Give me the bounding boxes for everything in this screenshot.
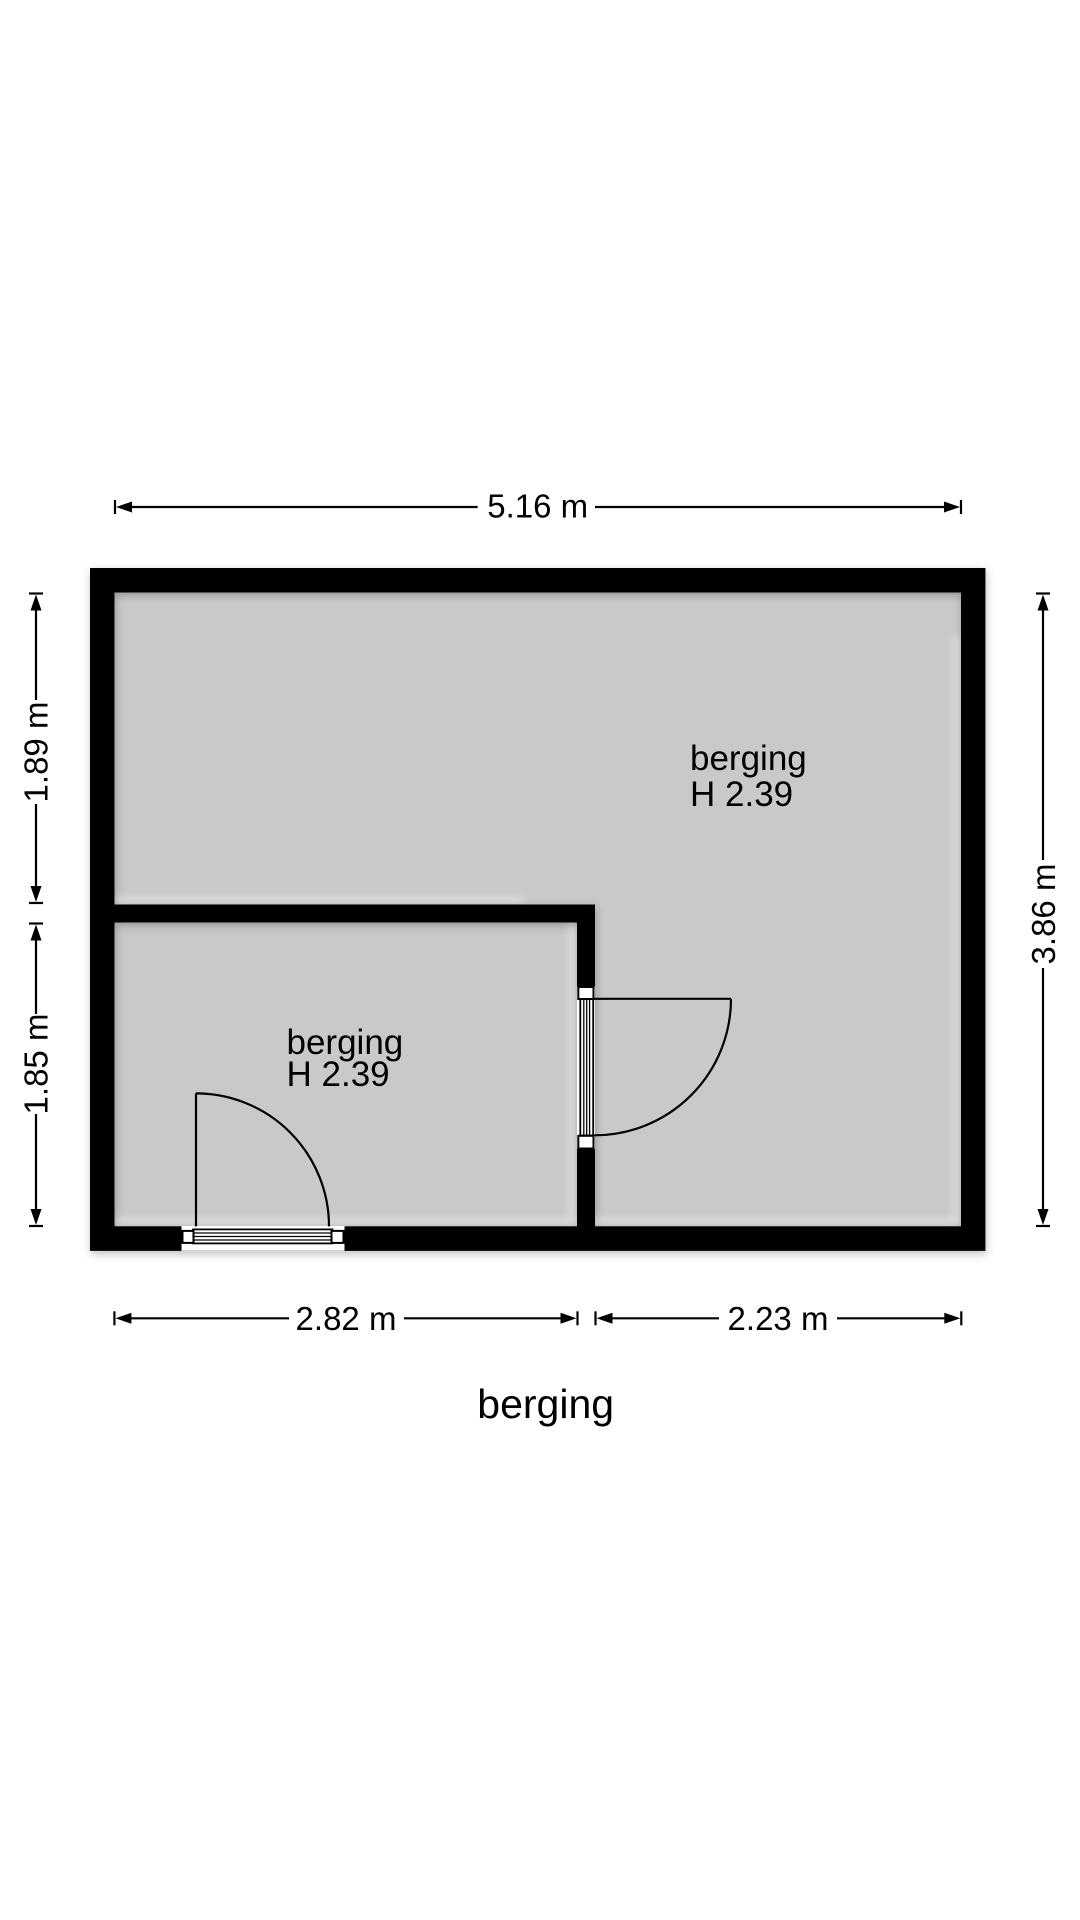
svg-text:berging: berging (690, 739, 807, 778)
svg-text:1.89 m: 1.89 m (18, 702, 55, 803)
svg-text:H 2.39: H 2.39 (287, 1055, 390, 1094)
svg-text:H 2.39: H 2.39 (690, 775, 793, 814)
svg-text:3.86 m: 3.86 m (1025, 864, 1062, 965)
svg-text:2.23 m: 2.23 m (728, 1300, 829, 1337)
svg-text:5.16 m: 5.16 m (487, 488, 588, 525)
svg-text:1.85 m: 1.85 m (18, 1014, 55, 1115)
svg-text:berging: berging (477, 1381, 614, 1427)
svg-text:2.82 m: 2.82 m (296, 1300, 397, 1337)
